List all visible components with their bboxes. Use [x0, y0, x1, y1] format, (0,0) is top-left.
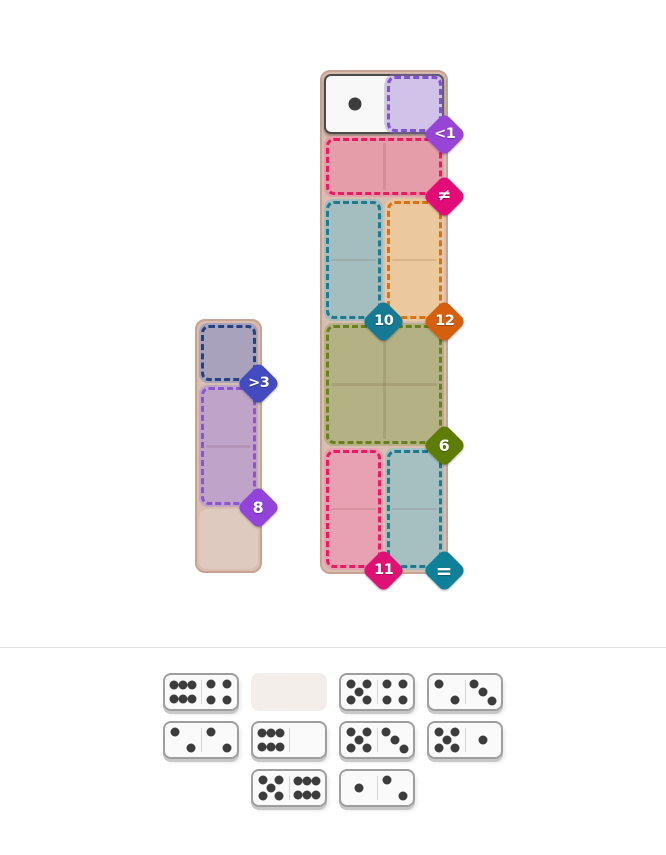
badge-label: >3: [247, 376, 268, 391]
pip: [451, 744, 460, 753]
domino-half: [377, 771, 413, 805]
domino-half: [341, 771, 377, 805]
tray-domino-5-1[interactable]: [427, 721, 503, 759]
pip: [188, 694, 197, 703]
pip: [188, 681, 197, 690]
pip: [267, 742, 276, 751]
pip: [443, 736, 452, 745]
pip: [346, 744, 355, 753]
pip: [355, 784, 364, 793]
pip: [363, 696, 372, 705]
pip: [303, 777, 312, 786]
pip: [383, 680, 392, 689]
pip: [312, 777, 321, 786]
domino-half-divider: [465, 728, 466, 752]
tray-domino-5-6[interactable]: [251, 769, 327, 807]
region-sum12[interactable]: [385, 199, 444, 322]
badge-label: 12: [434, 314, 453, 329]
region-sum10[interactable]: [324, 199, 383, 322]
domino-half: [377, 675, 413, 709]
cell-seam: [331, 259, 376, 262]
pip: [258, 742, 267, 751]
domino-half: [341, 675, 377, 709]
pip: [479, 688, 488, 697]
pip: [276, 729, 285, 738]
pip: [383, 695, 392, 704]
domino-half: [253, 723, 289, 757]
pip: [349, 98, 362, 111]
cell-seam: [331, 508, 376, 511]
badge-label: =: [436, 560, 453, 580]
pip: [258, 792, 267, 801]
board-large: <1≠1012611=: [320, 70, 448, 574]
pip: [303, 790, 312, 799]
domino-half: [465, 675, 501, 709]
domino-tray: [0, 648, 666, 817]
pip: [399, 744, 408, 753]
pip: [391, 736, 400, 745]
pip: [171, 728, 180, 737]
cell-seam: [392, 508, 437, 511]
pip: [294, 790, 303, 799]
pip: [398, 695, 407, 704]
pip: [222, 743, 231, 752]
pip: [434, 727, 443, 736]
pip: [275, 775, 284, 784]
cell-seam: [331, 383, 437, 386]
board-small: >38: [195, 319, 262, 573]
pip: [398, 680, 407, 689]
tray-domino-6-0[interactable]: [251, 721, 327, 759]
tray-row: [0, 673, 666, 711]
badge-label: 6: [438, 437, 449, 453]
badge-label: 10: [373, 314, 392, 329]
domino-half: [201, 723, 237, 757]
domino-half: [326, 76, 384, 132]
pip: [294, 777, 303, 786]
domino-half: [465, 723, 501, 757]
tray-domino-6-4[interactable]: [163, 673, 239, 711]
pip: [355, 736, 364, 745]
badge-label: ≠: [437, 188, 451, 205]
domino-half-divider: [465, 680, 466, 704]
pip: [275, 792, 284, 801]
domino-half: [429, 723, 465, 757]
pip: [363, 727, 372, 736]
domino-half-divider: [201, 680, 202, 704]
pip: [222, 695, 231, 704]
tray-row: [0, 721, 666, 759]
region-sum6[interactable]: [324, 323, 444, 446]
pip: [276, 742, 285, 751]
tray-domino-5-4[interactable]: [339, 673, 415, 711]
tray-domino-1-2[interactable]: [339, 769, 415, 807]
pip: [346, 679, 355, 688]
pip: [186, 743, 195, 752]
pip: [267, 729, 276, 738]
cell-seam: [392, 259, 437, 262]
region-sum11[interactable]: [324, 448, 383, 571]
pip: [363, 679, 372, 688]
domino-half-divider: [377, 728, 378, 752]
pip: [383, 776, 392, 785]
pip: [434, 744, 443, 753]
pip: [382, 727, 391, 736]
pip: [450, 695, 459, 704]
cell-seam: [383, 143, 386, 189]
domino-half-divider: [289, 776, 290, 800]
pip: [470, 679, 479, 688]
badge-label: 11: [373, 563, 392, 578]
pip: [363, 744, 372, 753]
pip: [207, 680, 216, 689]
pip: [170, 681, 179, 690]
domino-half: [429, 675, 465, 709]
badge-label: 8: [252, 499, 263, 515]
tray-domino-5-3[interactable]: [339, 721, 415, 759]
pip: [451, 727, 460, 736]
domino-half: [201, 675, 237, 709]
pip: [170, 694, 179, 703]
tray-domino-2-2[interactable]: [163, 721, 239, 759]
domino-half-divider: [201, 728, 202, 752]
pip: [222, 680, 231, 689]
pip: [479, 736, 488, 745]
pip: [258, 775, 267, 784]
pip: [267, 784, 276, 793]
domino-half: [165, 723, 201, 757]
domino-half-divider: [377, 776, 378, 800]
domino-half: [289, 771, 325, 805]
pip: [346, 727, 355, 736]
pip: [346, 696, 355, 705]
region-eq[interactable]: [385, 448, 444, 571]
pip: [207, 728, 216, 737]
pip: [179, 694, 188, 703]
pip: [355, 688, 364, 697]
pip: [179, 681, 188, 690]
tray-row: [0, 769, 666, 807]
tray-empty-slot[interactable]: [251, 673, 327, 711]
badge-label: <1: [433, 127, 454, 142]
domino-half: [253, 771, 289, 805]
pip: [398, 791, 407, 800]
pip: [435, 680, 444, 689]
domino-half-divider: [289, 728, 290, 752]
domino-half: [165, 675, 201, 709]
tray-domino-2-3[interactable]: [427, 673, 503, 711]
domino-half: [289, 723, 325, 757]
pip: [312, 790, 321, 799]
cell-seam: [206, 445, 251, 448]
pip: [487, 696, 496, 705]
domino-half: [377, 723, 413, 757]
game-stage: >38 <1≠1012611=: [0, 0, 666, 855]
pip: [207, 695, 216, 704]
region-sum8[interactable]: [199, 385, 258, 507]
pip: [258, 729, 267, 738]
domino-half: [341, 723, 377, 757]
domino-half-divider: [377, 680, 378, 704]
region-neq[interactable]: [324, 136, 444, 196]
